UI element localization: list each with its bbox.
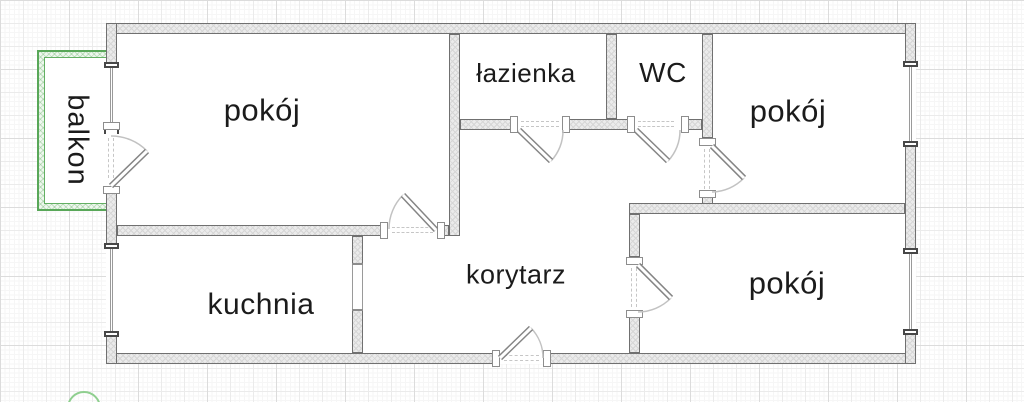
door-dashes xyxy=(521,121,559,127)
passage-gap xyxy=(352,264,363,310)
window-sill xyxy=(104,243,119,249)
window-sill xyxy=(903,248,918,254)
passage-cut xyxy=(352,309,363,311)
door-dashes xyxy=(631,268,637,307)
floorplan-canvas: pokój łazienka WC pokój kuchnia korytarz… xyxy=(0,0,1024,402)
door-jamb xyxy=(626,257,643,265)
wall-lazienka-wc[interactable] xyxy=(606,34,617,119)
window-glazing xyxy=(110,66,113,130)
room-label-pokoj-top-left: pokój xyxy=(224,95,301,126)
wall-pokoj-br-top[interactable] xyxy=(629,203,905,214)
wall-outer-top[interactable] xyxy=(106,23,916,34)
door-jamb xyxy=(103,186,120,194)
window-sill xyxy=(104,331,119,337)
door-jamb xyxy=(437,222,445,239)
room-korytarz[interactable] xyxy=(363,130,629,353)
door-dashes xyxy=(392,227,433,233)
room-label-korytarz: korytarz xyxy=(466,262,566,289)
door-jamb xyxy=(681,116,689,133)
window-glazing xyxy=(909,252,912,331)
door-dashes xyxy=(108,138,114,178)
door-jamb xyxy=(699,138,716,146)
room-label-lazienka: łazienka xyxy=(476,60,575,86)
window-glazing xyxy=(110,247,113,333)
door-jamb xyxy=(103,122,120,130)
passage-cut xyxy=(352,263,363,265)
wall-kuchnia-korytarz-a[interactable] xyxy=(352,236,363,264)
window-sill xyxy=(903,141,918,147)
door-dashes xyxy=(704,149,710,189)
green-circle-marker xyxy=(67,391,101,402)
wall-korytarz-pokoj-br-a[interactable] xyxy=(629,214,640,257)
window-sill xyxy=(903,61,918,67)
door-dashes xyxy=(638,121,674,127)
room-label-balkon: balkon xyxy=(63,94,92,185)
wall-pokoj-lazienka[interactable] xyxy=(449,34,460,236)
door-jamb xyxy=(699,190,716,198)
window-glazing xyxy=(909,65,912,143)
door-jamb xyxy=(562,116,570,133)
room-label-kuchnia: kuchnia xyxy=(208,290,315,320)
door-jamb xyxy=(492,350,500,367)
door-jamb xyxy=(626,310,643,318)
wall-pokoj-korytarz-a[interactable] xyxy=(117,225,388,236)
window-sill xyxy=(104,62,119,68)
door-jamb xyxy=(510,116,518,133)
room-label-pokoj-top-right: pokój xyxy=(750,96,827,127)
door-jamb xyxy=(627,116,635,133)
window-sill xyxy=(903,329,918,335)
wall-kuchnia-korytarz-b[interactable] xyxy=(352,310,363,353)
door-jamb xyxy=(543,350,551,367)
room-label-pokoj-bottom-right: pokój xyxy=(749,268,826,299)
door-dashes xyxy=(504,355,539,361)
room-label-wc: WC xyxy=(639,59,687,87)
wall-lazienka-korytarz-b[interactable] xyxy=(562,119,635,130)
door-jamb xyxy=(380,222,388,239)
wall-wc-pokoj[interactable] xyxy=(702,34,713,138)
